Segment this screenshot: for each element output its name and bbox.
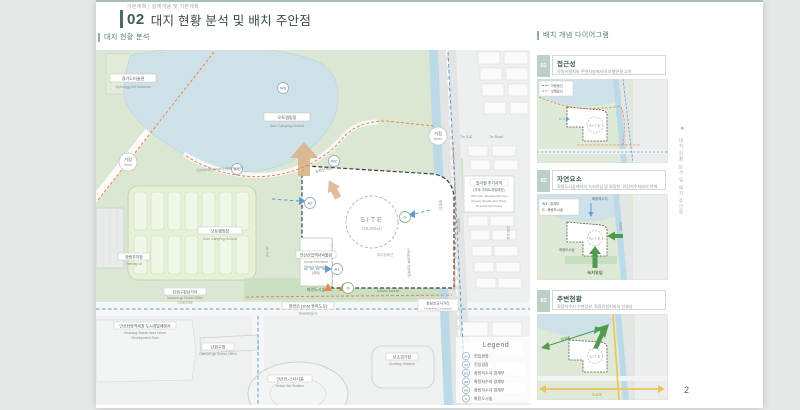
road7-label-ko: 7m 도로 [460,135,472,139]
svg-text:차량동선: 차량동선 [551,83,563,88]
section-accent-bar [537,31,539,40]
svg-text:화랑로 (30M 광폭도로): 화랑로 (30M 광폭도로) [289,303,328,309]
development-zone-block [96,320,196,382]
svg-text:(예정): (예정) [312,270,320,275]
svg-text:빌라형 주거지역: 빌라형 주거지역 [476,181,503,186]
svg-text:G : 화랑도시숲: G : 화랑도시숲 [542,207,563,212]
svg-text:Ansan Wa Stadium: Ansan Wa Stadium [276,384,304,388]
page-number: 2 [684,385,689,395]
legend-title: Legend [483,342,509,349]
svg-text:Ansan Industrial: Ansan Industrial [304,260,328,264]
site-analysis-map: 거점 Node 거점 Node W3 W1 W2 A2 A1 G G SITE … [96,50,530,405]
svg-text:Gyeonggi Art Museum: Gyeonggi Art Museum [115,85,151,89]
site-marker: SITE (25,000㎡) [346,196,398,248]
svg-text:Hwarang Station Area Urban: Hwarang Station Area Urban [124,331,166,335]
svg-text:단원구청삼거리: 단원구청삼거리 [173,290,197,295]
diagram-number-chip: 03 [537,290,550,312]
auxiliary-stadium-building [372,346,434,388]
svg-text:거점: 거점 [434,130,442,137]
stream-label: 화랑천 [618,222,624,231]
badge-a2: A2 [305,198,316,209]
svg-text:보행동선: 보행동선 [551,89,563,94]
svg-text:화랑주차장: 화랑주차장 [125,255,143,260]
badge-g-south: G [343,283,354,294]
svg-text:Auxiliary Stadium: Auxiliary Stadium [389,362,415,366]
minimap-legend: 차량동선 보행동선 [539,81,573,96]
edge-vertical-text: 대지 현황 분석 및 배치 주안점 [678,138,684,215]
svg-text:Development Area): Development Area) [476,204,502,208]
svg-text:W3: W3 [280,86,287,91]
svg-text:SITE: SITE [589,123,601,128]
diagram-subtitle: 화랑저수지 수변경관, 화랑유원지와의 연결성 [557,304,665,310]
svg-text:거점: 거점 [124,156,132,163]
svg-text:(Future Residential Tower: (Future Residential Tower [471,199,506,203]
legend-row: W3 화랑저수지 경계부 [462,386,504,393]
site-boundary-label: 대지경계선 [377,252,394,257]
stream-label: 화랑천 [438,200,444,210]
svg-text:Villa Type Residential Area: Villa Type Residential Area [471,194,508,198]
svg-text:Crossroad: Crossroad [178,301,193,305]
svg-text:Hwarang-ro: Hwarang-ro [299,312,318,316]
legend-row: G 화랑도시숲 [462,395,492,402]
auxiliary-stadium-label: 보조경기장 Auxiliary Stadium [386,353,418,366]
svg-text:W1: W1 [464,371,469,375]
svg-text:안산화랑역세권 도시개발예정지: 안산화랑역세권 도시개발예정지 [119,324,171,329]
streamside-road-label: 화랑천변로 [456,218,462,233]
svg-text:G: G [346,286,349,291]
svg-text:SITE: SITE [360,217,384,224]
diagram-title: 주변현황 [557,293,665,303]
svg-text:Parking lot: Parking lot [126,262,142,266]
section-label-left: 대지 현황 분석 [98,32,150,42]
diagram-card-nature: 02 자연요소 화랑도시숲에서의 녹지유입 및 화랑천, 화랑저수지와의 연계 [537,170,668,282]
diagram-title: 접근성 [557,58,665,68]
svg-text:경기도미술관: 경기도미술관 [121,75,144,82]
diagram-minimap: 차량동선 보행동선 SITE [537,79,668,168]
svg-text:화랑도시숲: 화랑도시숲 [474,395,493,401]
svg-text:G: G [403,215,406,220]
page-header: 02 대지 현황 분석 및 배치 주안점 [120,9,311,29]
svg-text:W2: W2 [464,380,469,384]
svg-text:화랑초교사거리: 화랑초교사거리 [426,301,449,306]
site-marker: SITE [588,231,603,246]
art-museum-label: 경기도미술관 Gyeonggi Art Museum [110,74,156,89]
svg-text:Danwon-gu District Office: Danwon-gu District Office [199,352,236,356]
reservoir-label: 화랑저수지 [592,196,608,201]
svg-text:A1: A1 [464,354,468,358]
road7-label-en: 7m Road [489,135,503,139]
camping-label: 오토캠핑장 Auto Camping Ground [198,227,242,241]
section-accent-bar [98,33,100,42]
urban-forest-label-en: Urban forest [377,288,400,293]
svg-text:Auto Camping Ground: Auto Camping Ground [270,124,304,128]
villa-area-label: 빌라형 주거지역 (추후 아파트개발예정) Villa Type Residen… [464,176,514,212]
badge-a1: A1 [332,264,343,275]
svg-text:SITE: SITE [589,354,601,359]
legend-row: A1 진입광장 [462,352,489,359]
diagram-subtitle: 화랑도시숲에서의 녹지유입 및 화랑천, 화랑저수지와의 연계 [557,184,665,190]
slide-card: 기본계획 | 설계개념 및 기본계획 02 대지 현황 분석 및 배치 주안점 … [96,0,763,408]
legend-row: W2 화랑저수지 경계부 [462,378,504,385]
svg-text:안산산업역사박물관: 안산산업역사박물관 [300,253,333,258]
site-marker: SITE [588,349,603,364]
svg-text:A1: A1 [335,267,341,272]
legend-row: W1 화랑저수지 경계부 [462,369,504,376]
svg-text:(추후 아파트개발예정): (추후 아파트개발예정) [473,187,504,192]
page-title: 대지 현황 분석 및 배치 주안점 [151,10,311,29]
crossroad2-label: 화랑초교사거리 Hwarang Crossroad [418,299,458,311]
svg-text:Auto Camping Ground: Auto Camping Ground [203,237,237,241]
svg-text:Danwon-gu District Office: Danwon-gu District Office [167,296,203,300]
map-legend: Legend A1 진입광장 A2 진입광장 W1 화랑저수지 경계부 W2 화… [456,337,530,403]
diagram-subtitle: 화랑유원지와 주변시설에서의 보행연결 고려 [557,69,665,75]
edge-marker-icon: ❖ [680,126,684,132]
diagram-card-surroundings: 03 주변현황 화랑저수지 수변경관, 화랑유원지와의 연결성 [537,290,668,402]
svg-text:Node: Node [434,137,442,141]
svg-text:W2: W2 [331,159,338,164]
legend-row: A2 진입광장 [462,361,489,368]
svg-text:안산와~스타디움: 안산와~스타디움 [276,377,304,382]
slide-canvas: { "header": { "eyebrow": "기본계획 | 설계개념 및 … [0,0,800,408]
svg-text:진입광장: 진입광장 [474,361,489,367]
road-axis-label: 도로축 [592,392,603,397]
svg-text:(25,000㎡): (25,000㎡) [362,225,382,231]
diagram-minimap: W3 : 경계부 G : 화랑도시숲 화랑저수지 화랑도시숲 녹지유입 화랑천 … [537,194,668,285]
title-accent-bar [120,10,123,28]
promenade-label: 산책로(향후 조성예정) [406,248,412,278]
road20-label: 20M 도로 [506,226,510,240]
diagram-card-accessibility: 01 접근성 화랑유원지와 주변시설에서의 보행연결 고려 [537,55,668,163]
svg-text:보조경기장: 보조경기장 [393,355,411,360]
green-inflow-label: 녹지유입 [587,269,603,276]
lakeside-camping-label: 오토캠핑장 Auto Camping Ground [264,113,310,128]
node-circle-east: 거점 Node [429,127,447,145]
svg-text:Development Zone: Development Zone [131,336,159,340]
svg-text:진입광장: 진입광장 [474,353,489,359]
svg-text:화랑저수지 경계부: 화랑저수지 경계부 [474,370,505,376]
road3-label: 3M 도로 [265,246,269,257]
svg-text:History Museum: History Museum [304,265,328,269]
svg-text:Hwarang Crossroad: Hwarang Crossroad [424,307,452,311]
site-marker: SITE [587,117,603,133]
diagram-number-chip: 01 [537,55,550,77]
svg-text:화랑저수지 경계부: 화랑저수지 경계부 [474,378,505,384]
badge-w3: W3 [278,83,289,94]
svg-text:SITE: SITE [589,236,601,241]
svg-text:W3: W3 [464,388,469,392]
node-circle-west: 거점 Node [119,153,137,171]
svg-text:A2: A2 [308,201,314,206]
svg-text:단원구청: 단원구청 [210,344,225,350]
svg-text:A2: A2 [464,363,468,367]
diagram-title: 자연요소 [557,173,665,183]
diagram-minimap: 자연축 도로축 SITE [537,314,668,405]
chapter-number: 02 [127,11,145,28]
badge-g-east: G [400,212,411,223]
svg-text:화랑저수지 경계부: 화랑저수지 경계부 [474,387,505,393]
svg-text:Node: Node [124,163,132,167]
section-label-right: 배치 개념 다이어그램 [537,30,609,40]
svg-text:W3 : 경계부: W3 : 경계부 [542,201,559,206]
svg-text:오토캠핑장: 오토캠핑장 [211,228,230,234]
minimap-callout: W3 : 경계부 G : 화랑도시숲 [539,199,579,215]
diagram-number-chip: 02 [537,170,550,192]
svg-text:오토캠핑장: 오토캠핑장 [277,114,296,120]
badge-w2: W2 [329,156,340,167]
urban-forest-label-ko: 화랑도시숲 [307,286,326,292]
top-accent-line [96,0,763,2]
district-office-label: 단원구청 Danwon-gu District Office [199,343,236,356]
forest-label: 화랑도시숲 [559,247,575,252]
